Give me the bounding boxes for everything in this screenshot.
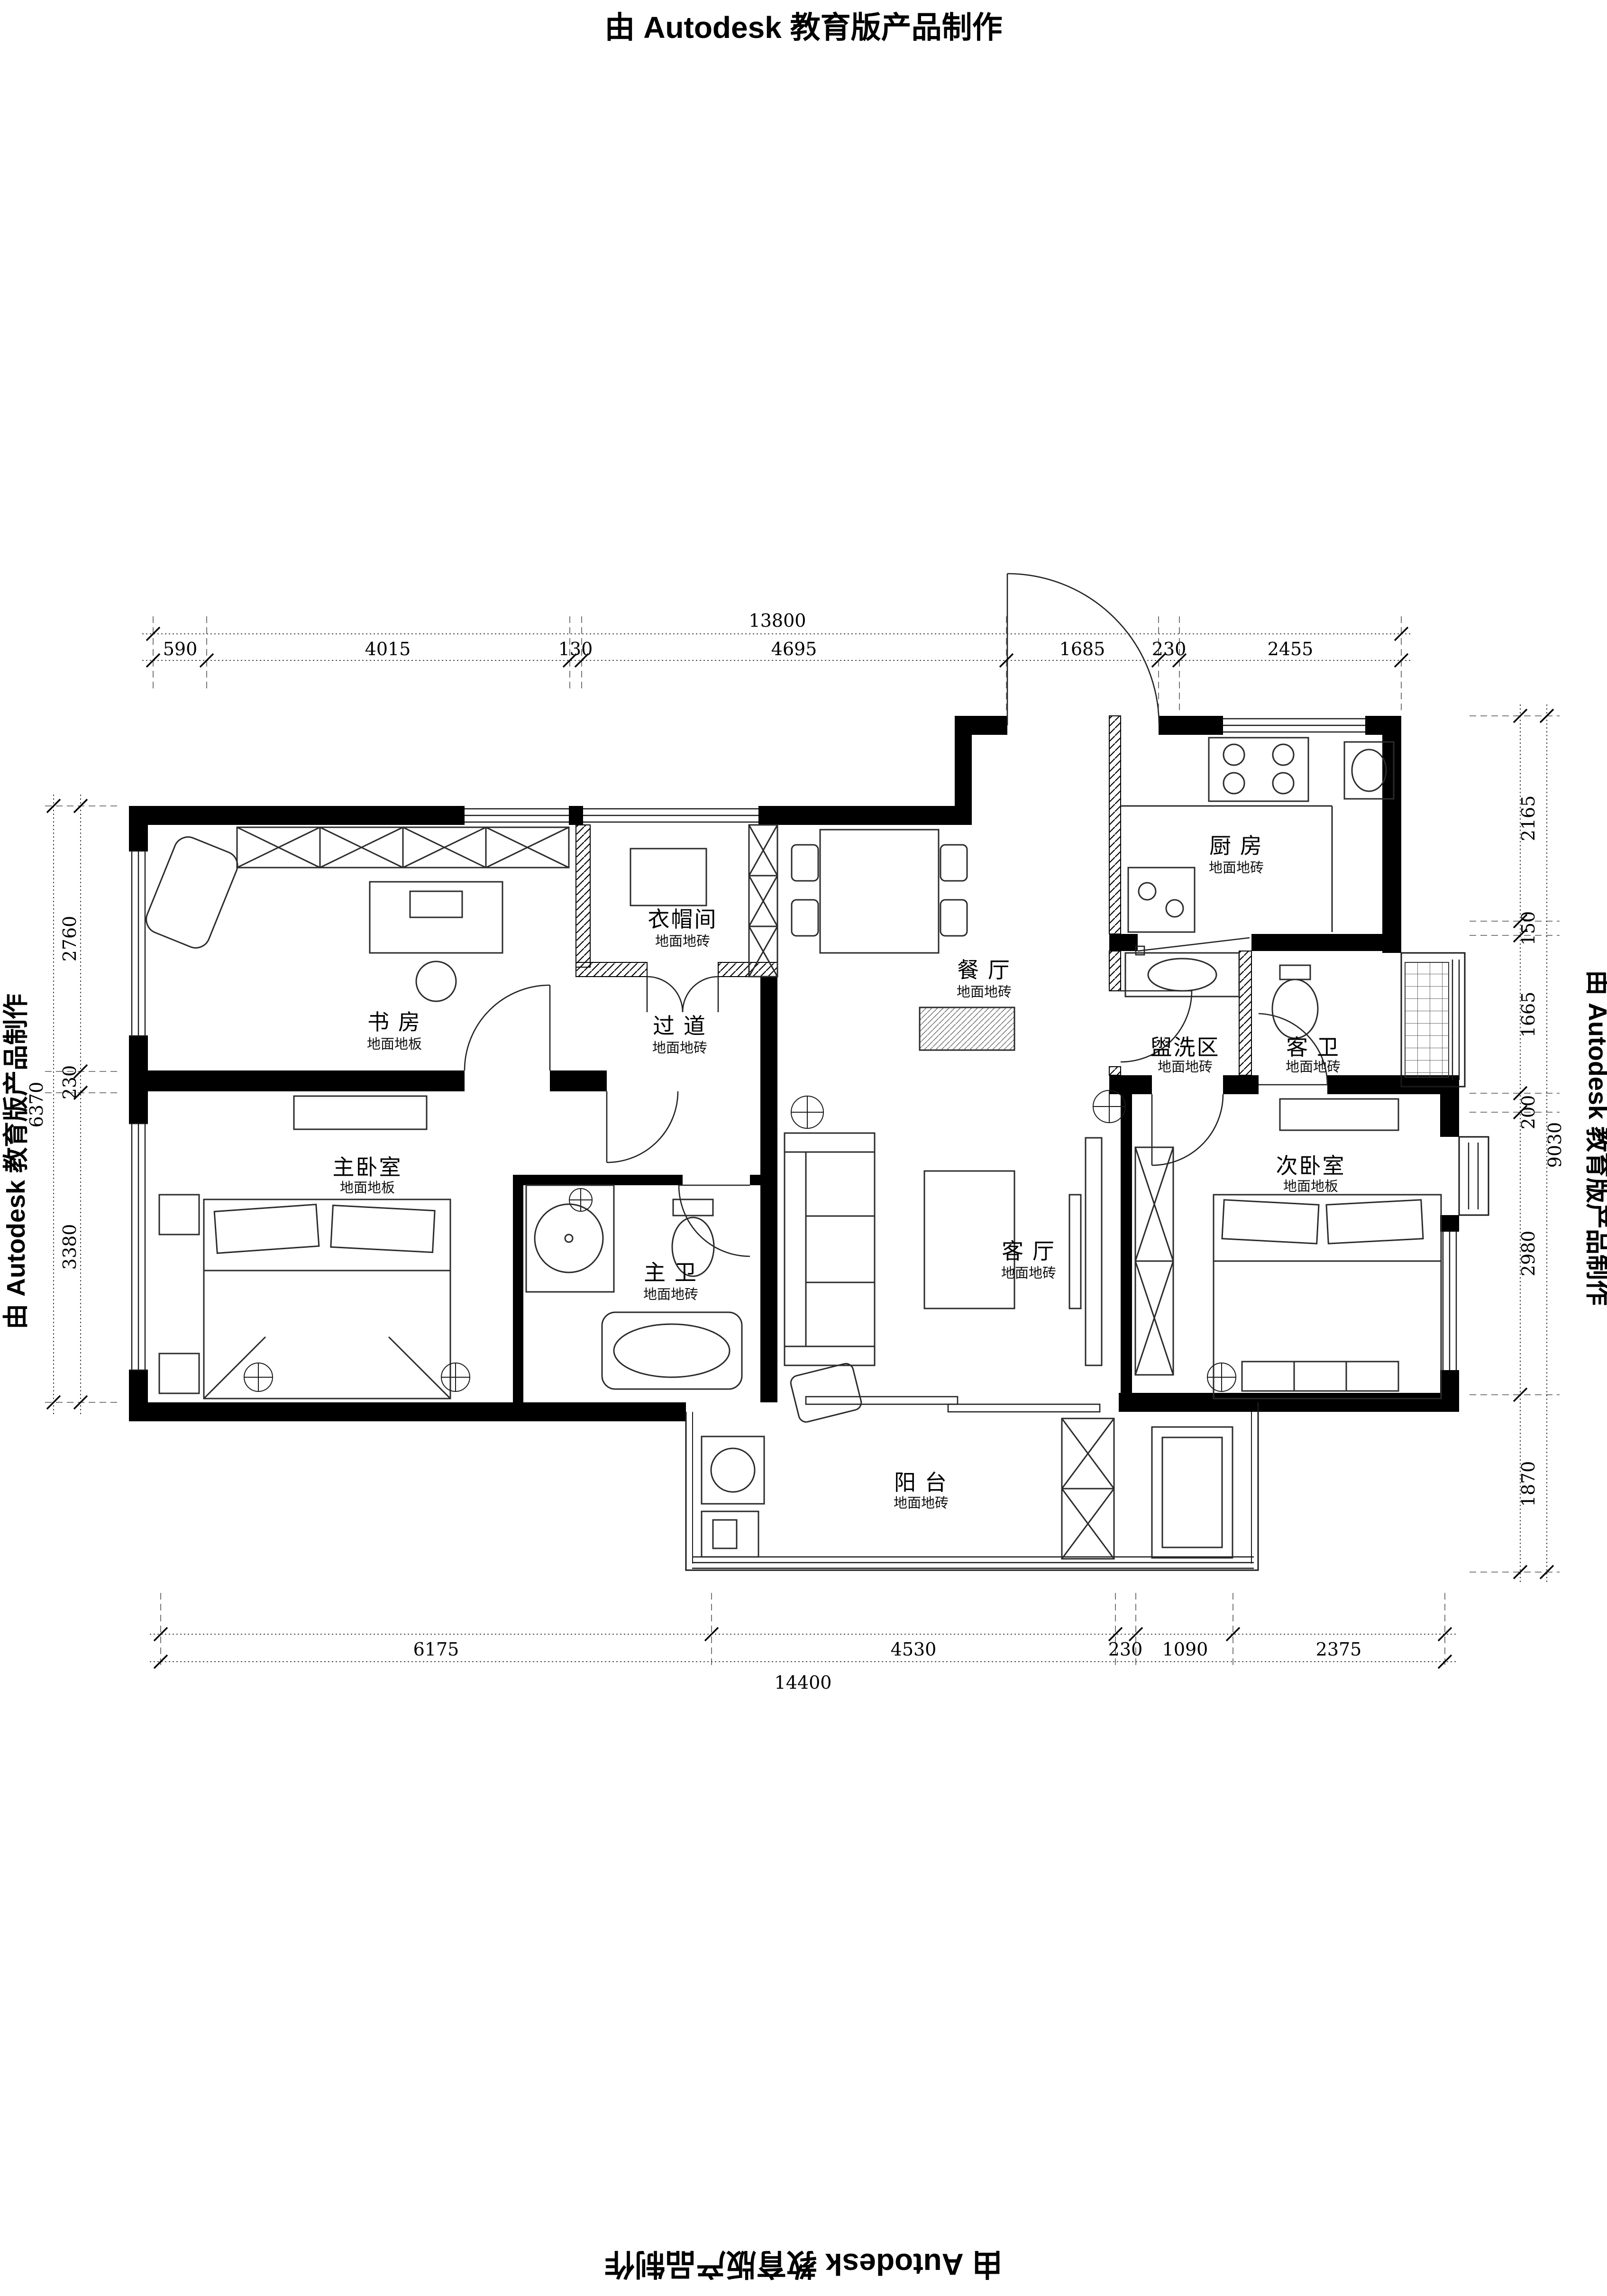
balcony-sliding-door xyxy=(806,1397,1100,1412)
doors xyxy=(465,574,1327,1412)
guest-bath-bay-window xyxy=(1401,953,1465,1087)
svg-text:客 卫: 客 卫 xyxy=(1286,1035,1340,1060)
svg-text:2375: 2375 xyxy=(1316,1639,1362,1660)
svg-text:1090: 1090 xyxy=(1162,1639,1208,1660)
svg-text:1685: 1685 xyxy=(1059,639,1105,659)
svg-text:盥洗区: 盥洗区 xyxy=(1150,1035,1220,1060)
svg-text:厨 房: 厨 房 xyxy=(1209,833,1263,858)
svg-text:200: 200 xyxy=(1518,1095,1539,1130)
room-label-guest-bath: 客 卫 地面地砖 xyxy=(1286,1035,1341,1075)
room-label-master-bath: 主 卫 地面地砖 xyxy=(643,1260,698,1302)
room-label-hallway: 过 道 地面地砖 xyxy=(652,1014,707,1056)
master-bedroom-furniture xyxy=(159,1096,450,1399)
cloakroom-double-door xyxy=(647,977,718,1012)
svg-text:地面地砖: 地面地砖 xyxy=(643,1287,698,1302)
watermark-bottom: 由 Autodesk 教育版产品制作 xyxy=(604,2247,1002,2281)
balcony-furniture xyxy=(702,1418,1233,1559)
svg-text:主卧室: 主卧室 xyxy=(333,1155,402,1180)
watermark-left: 由 Autodesk 教育版产品制作 xyxy=(2,994,30,1329)
svg-text:阳 台: 阳 台 xyxy=(894,1470,948,1495)
dimension-right: 2165 150 1665 200 2980 1870 9030 xyxy=(1470,704,1565,1583)
room-label-kitchen: 厨 房 地面地砖 xyxy=(1209,833,1264,876)
svg-text:230: 230 xyxy=(59,1065,80,1100)
dim-right-total: 9030 xyxy=(1544,1122,1565,1168)
svg-text:地面地板: 地面地板 xyxy=(1283,1179,1338,1194)
floor-plan-sheet: 由 Autodesk 教育版产品制作 由 Autodesk 教育版产品制作 由 … xyxy=(0,0,1607,2296)
svg-text:地面地砖: 地面地砖 xyxy=(1286,1059,1341,1075)
second-bedroom-door xyxy=(1152,1094,1223,1165)
svg-text:地面地砖: 地面地砖 xyxy=(957,984,1012,1000)
svg-text:2455: 2455 xyxy=(1268,639,1314,659)
room-label-dining: 餐 厅 地面地砖 xyxy=(957,958,1012,1000)
hall-cabinet xyxy=(749,825,777,977)
svg-text:590: 590 xyxy=(163,639,198,659)
svg-text:230: 230 xyxy=(1108,1639,1143,1660)
svg-text:餐 厅: 餐 厅 xyxy=(957,958,1011,982)
svg-text:地面地砖: 地面地砖 xyxy=(655,933,710,949)
lamp-symbols xyxy=(244,1090,1236,1391)
svg-text:4695: 4695 xyxy=(771,639,817,659)
room-label-balcony: 阳 台 地面地砖 xyxy=(894,1470,949,1511)
room-label-second-bedroom: 次卧室 地面地板 xyxy=(1276,1153,1346,1194)
master-bath-furniture xyxy=(526,1185,742,1389)
dim-top-total: 13800 xyxy=(749,610,806,631)
svg-text:地面地砖: 地面地砖 xyxy=(1001,1265,1056,1281)
svg-text:地面地板: 地面地板 xyxy=(340,1180,395,1196)
watermark-top: 由 Autodesk 教育版产品制作 xyxy=(604,10,1002,45)
watermarks: 由 Autodesk 教育版产品制作 由 Autodesk 教育版产品制作 由 … xyxy=(2,10,1607,2281)
dimension-top: 13800 590 4015 130 4695 1685 230 2455 xyxy=(142,610,1413,711)
guest-bath-furniture xyxy=(1272,965,1318,1038)
svg-text:地面地板: 地面地板 xyxy=(367,1036,422,1052)
svg-text:6175: 6175 xyxy=(413,1639,459,1660)
wash-area-furniture xyxy=(1125,953,1239,997)
study-door xyxy=(465,985,550,1070)
svg-text:4530: 4530 xyxy=(891,1639,937,1660)
svg-text:客 厅: 客 厅 xyxy=(1002,1239,1056,1263)
svg-text:3380: 3380 xyxy=(59,1224,80,1270)
svg-text:1870: 1870 xyxy=(1518,1461,1539,1507)
watermark-right: 由 Autodesk 教育版产品制作 xyxy=(1583,970,1607,1306)
master-bedroom-door xyxy=(607,1091,678,1162)
svg-text:2980: 2980 xyxy=(1518,1231,1539,1277)
svg-text:衣帽间: 衣帽间 xyxy=(648,907,718,932)
dining-furniture xyxy=(792,830,967,953)
room-label-cloakroom: 衣帽间 地面地砖 xyxy=(648,907,718,949)
svg-text:过 道: 过 道 xyxy=(653,1014,707,1038)
room-label-master-bedroom: 主卧室 地面地板 xyxy=(333,1155,402,1196)
room-label-study: 书 房 地面地板 xyxy=(367,1010,422,1052)
svg-text:1665: 1665 xyxy=(1518,992,1539,1038)
dimension-left: 2760 230 3380 6370 xyxy=(26,795,119,1416)
dimension-bottom: 6175 4530 230 1090 2375 14400 xyxy=(150,1593,1456,1693)
svg-text:地面地砖: 地面地砖 xyxy=(894,1495,949,1511)
svg-text:地面地砖: 地面地砖 xyxy=(1158,1059,1213,1075)
svg-text:书 房: 书 房 xyxy=(367,1010,421,1034)
floor-plan-drawing: 由 Autodesk 教育版产品制作 由 Autodesk 教育版产品制作 由 … xyxy=(0,0,1607,2296)
dim-left-total: 6370 xyxy=(26,1082,47,1128)
room-label-wash-area: 盥洗区 地面地砖 xyxy=(1150,1035,1220,1075)
svg-text:地面地砖: 地面地砖 xyxy=(1209,860,1264,876)
svg-text:主 卫: 主 卫 xyxy=(644,1260,698,1285)
svg-text:150: 150 xyxy=(1518,911,1539,946)
living-furniture xyxy=(785,1007,1102,1424)
svg-text:2165: 2165 xyxy=(1518,796,1539,842)
svg-text:次卧室: 次卧室 xyxy=(1276,1153,1346,1178)
dim-bottom-total: 14400 xyxy=(775,1672,832,1693)
walls xyxy=(129,716,1459,1421)
svg-text:地面地砖: 地面地砖 xyxy=(652,1040,707,1056)
room-label-living: 客 厅 地面地砖 xyxy=(1001,1239,1056,1281)
study-furniture xyxy=(142,827,569,1001)
svg-text:2760: 2760 xyxy=(59,916,80,962)
svg-text:230: 230 xyxy=(1152,639,1187,659)
svg-text:4015: 4015 xyxy=(365,639,411,659)
svg-text:130: 130 xyxy=(558,639,593,659)
bedroom-bay-window xyxy=(1459,1137,1488,1215)
second-bedroom-furniture xyxy=(1135,1099,1441,1399)
cloakroom-furniture xyxy=(630,849,706,906)
